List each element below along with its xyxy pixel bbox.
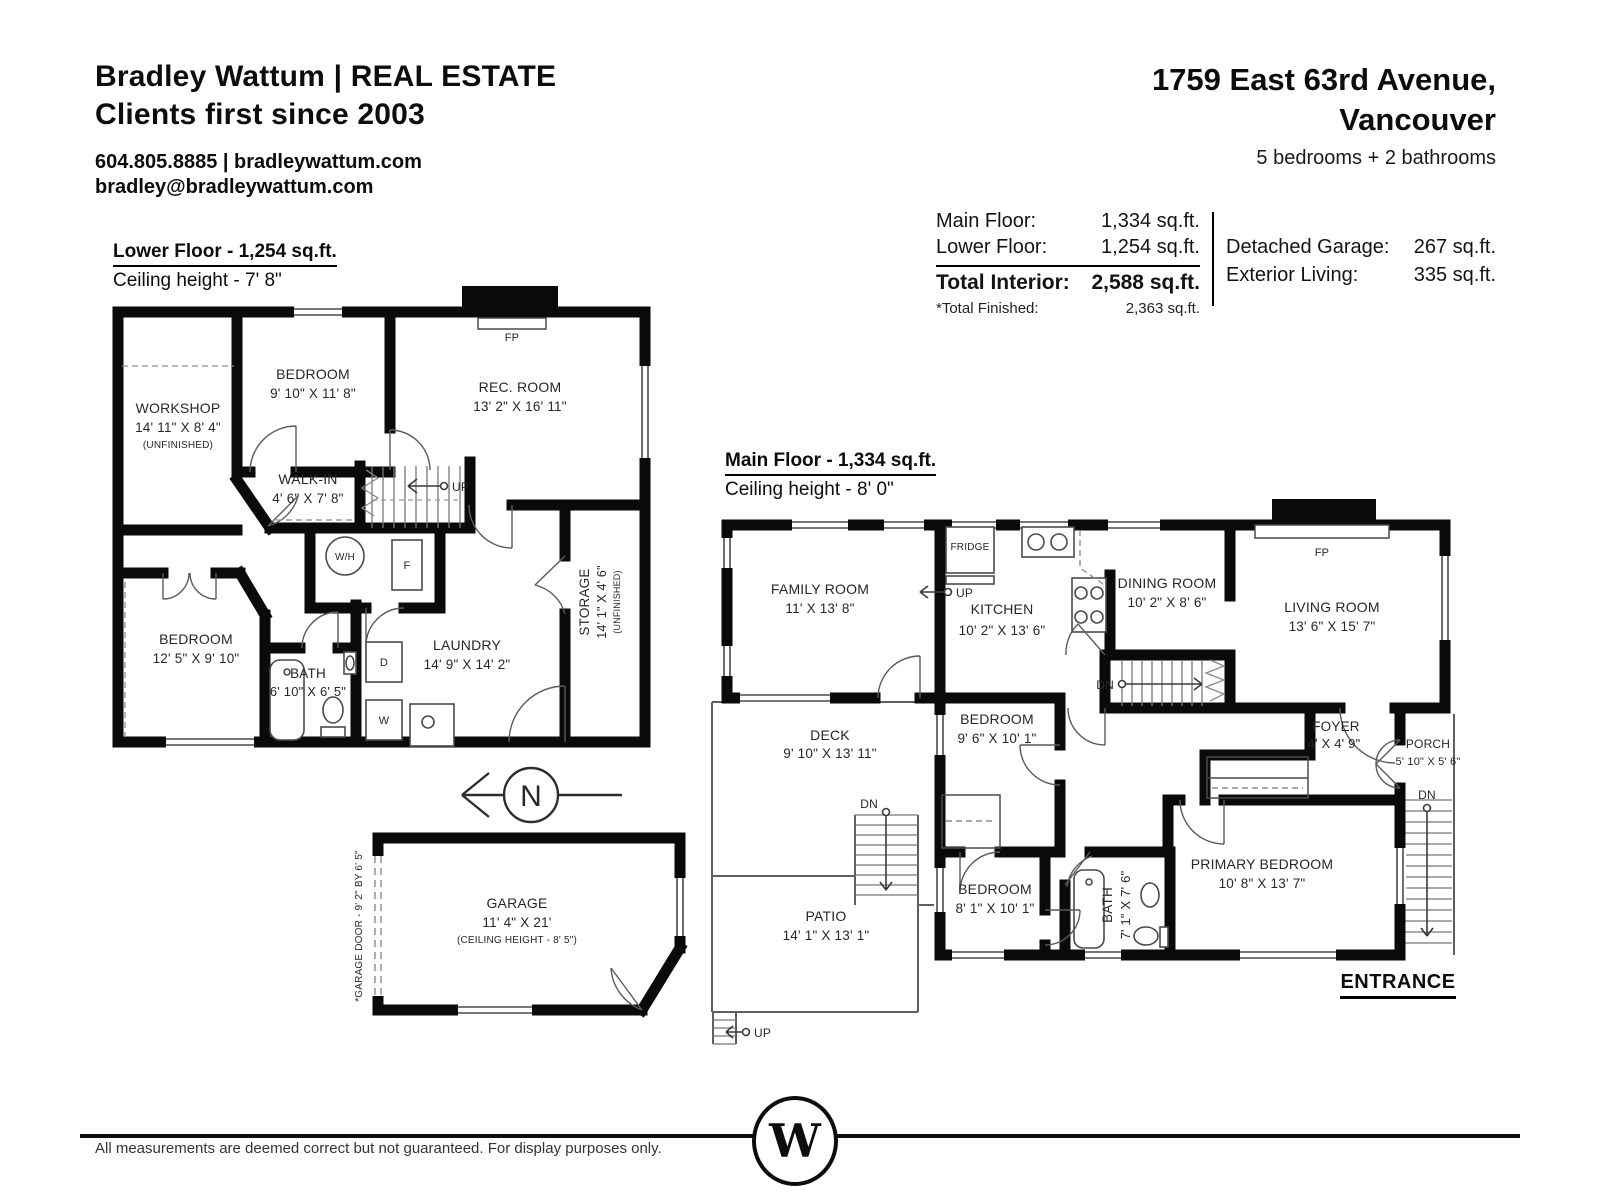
room-label-bedroom-top: BEDROOM bbox=[276, 366, 350, 382]
room-dims-family: 11' X 13' 8" bbox=[785, 601, 854, 616]
room-label-patio: PATIO bbox=[806, 908, 847, 924]
up-label: UP bbox=[956, 586, 973, 600]
room-label-bedroom-low: BEDROOM bbox=[159, 631, 233, 647]
room-dims-walk-in: 4' 6" X 7' 8" bbox=[272, 491, 343, 506]
room-label-workshop: WORKSHOP bbox=[136, 400, 221, 416]
room-label-garage: GARAGE bbox=[486, 895, 547, 911]
garage-labels: GARAGE 11' 4" X 21' (CEILING HEIGHT - 8'… bbox=[354, 850, 577, 1002]
room-dims-storage: 14' 1" X 4' 6" bbox=[595, 565, 609, 638]
room-label-dining: DINING ROOM bbox=[1118, 575, 1217, 591]
room-dims-primary: 10' 8" X 13' 7" bbox=[1219, 876, 1306, 891]
room-dims-bath-lower: 6' 10" X 6' 5" bbox=[270, 684, 346, 699]
room-dims-bath-main: 7' 1" X 7' 6" bbox=[1118, 870, 1133, 939]
room-dims-living: 13' 6" X 15' 7" bbox=[1289, 619, 1376, 634]
lower-fireplace bbox=[478, 318, 546, 329]
garage-plan: GARAGE 11' 4" X 21' (CEILING HEIGHT - 8'… bbox=[354, 838, 686, 1016]
room-dims-laundry: 14' 9" X 14' 2" bbox=[424, 657, 511, 672]
compass-north-label: N bbox=[520, 780, 542, 813]
room-dims-bedroom1: 9' 6" X 10' 1" bbox=[957, 731, 1036, 746]
room-dims-foyer: 4' X 4' 9" bbox=[1308, 736, 1361, 751]
room-dims-patio: 14' 1" X 13' 1" bbox=[783, 928, 870, 943]
garage-door-arc bbox=[611, 968, 642, 1010]
lower-floor-plan: FP WORKSHOP 14' 11" X 8' 4" (UNFINISHED)… bbox=[118, 286, 651, 748]
toilet-icon bbox=[323, 697, 343, 723]
room-dims-bedroom2: 8' 1" X 10' 1" bbox=[955, 901, 1034, 916]
main-floor-plan: FP FAMILY ROOM 11' X 13' 8" FRIDGE UP KI… bbox=[712, 499, 1460, 1044]
furnace-label: F bbox=[404, 560, 411, 572]
room-label-deck: DECK bbox=[810, 727, 850, 743]
fridge-label: FRIDGE bbox=[951, 542, 990, 553]
room-label-foyer: FOYER bbox=[1312, 719, 1360, 734]
brokerage-logo-icon: W bbox=[752, 1096, 838, 1186]
room-label-living: LIVING ROOM bbox=[1284, 599, 1380, 615]
room-label-laundry: LAUNDRY bbox=[433, 637, 502, 653]
room-dims-kitchen: 10' 2" X 13' 6" bbox=[959, 623, 1046, 638]
room-label-porch: PORCH bbox=[1406, 737, 1450, 751]
room-label-bedroom2: BEDROOM bbox=[958, 881, 1032, 897]
main-direction-markers bbox=[726, 586, 1433, 1038]
washer-label: W bbox=[379, 715, 390, 727]
room-note-garage: (CEILING HEIGHT - 8' 5") bbox=[457, 935, 577, 946]
room-dims-dining: 10' 2" X 8' 6" bbox=[1127, 595, 1206, 610]
room-label-bedroom1: BEDROOM bbox=[960, 711, 1034, 727]
room-dims-porch: 5' 10" X 5' 6" bbox=[1396, 756, 1461, 768]
logo-letter: W bbox=[769, 1118, 821, 1164]
main-fireplace bbox=[1255, 525, 1389, 538]
room-dims-bedroom-top: 9' 10" X 11' 8" bbox=[270, 386, 356, 401]
garage-door-note: *GARAGE DOOR - 9' 2" BY 6' 5" bbox=[354, 850, 365, 1002]
disclaimer-text: All measurements are deemed correct but … bbox=[95, 1140, 662, 1157]
garage-door-gap bbox=[371, 856, 385, 996]
room-label-primary: PRIMARY BEDROOM bbox=[1191, 856, 1334, 872]
dn-label: DN bbox=[860, 797, 878, 811]
stove-icon bbox=[1072, 578, 1106, 632]
up-label: UP bbox=[754, 1026, 771, 1040]
compass: N bbox=[462, 768, 622, 822]
room-label-bath-main: BATH bbox=[1100, 887, 1115, 923]
toilet-icon bbox=[1134, 927, 1158, 945]
bath-sink-icon bbox=[1141, 883, 1159, 907]
dn-label: DN bbox=[1096, 678, 1114, 692]
room-dims-workshop: 14' 11" X 8' 4" bbox=[135, 420, 221, 435]
up-label: UP bbox=[452, 480, 469, 494]
water-heater-label: W/H bbox=[335, 552, 355, 563]
fireplace-label: FP bbox=[1315, 547, 1329, 559]
lower-fixtures bbox=[270, 537, 454, 746]
floorplan-drawing: FP WORKSHOP 14' 11" X 8' 4" (UNFINISHED)… bbox=[0, 0, 1600, 1200]
dryer-label: D bbox=[380, 657, 388, 669]
room-label-family: FAMILY ROOM bbox=[771, 581, 869, 597]
room-dims-deck: 9' 10" X 13' 11" bbox=[783, 746, 877, 761]
room-label-walk-in: WALK-IN bbox=[278, 471, 337, 487]
room-dims-bedroom-low: 12' 5" X 9' 10" bbox=[153, 651, 240, 666]
fireplace-label: FP bbox=[505, 332, 519, 344]
floorplan-page: Bradley Wattum | REAL ESTATE Clients fir… bbox=[0, 0, 1600, 1200]
main-door-arcs bbox=[878, 624, 1400, 945]
room-label-rec-room: REC. ROOM bbox=[479, 379, 562, 395]
room-dims-rec-room: 13' 2" X 16' 11" bbox=[473, 399, 567, 414]
dn-label: DN bbox=[1418, 788, 1436, 802]
room-note-storage: (UNFINISHED) bbox=[612, 570, 622, 633]
room-note-workshop: (UNFINISHED) bbox=[143, 440, 213, 451]
main-stairwell bbox=[1122, 660, 1224, 706]
lower-up-marker bbox=[408, 479, 448, 493]
room-label-bath-lower: BATH bbox=[290, 666, 326, 681]
room-dims-garage: 11' 4" X 21' bbox=[482, 915, 551, 930]
room-label-storage: STORAGE bbox=[577, 568, 592, 635]
room-label-kitchen: KITCHEN bbox=[971, 601, 1034, 617]
